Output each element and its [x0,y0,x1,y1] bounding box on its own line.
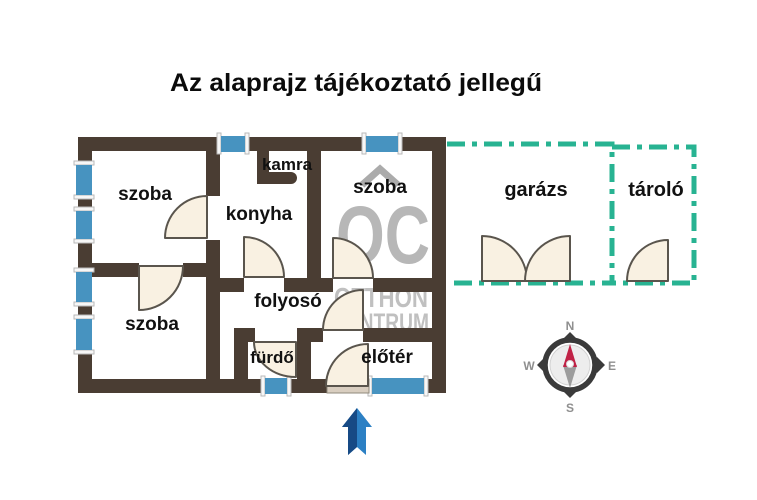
room-label-eloter: előtér [361,347,413,368]
room-label-kamra: kamra [262,155,313,174]
window-frame [287,376,291,396]
window-room-right-top [366,136,398,152]
wall-corridor-top-a [206,278,244,292]
window-frame [74,239,94,243]
room-label-szoba-3: szoba [353,177,407,198]
compass-west-label: W [523,359,535,373]
window-frame [245,133,249,154]
room-label-konyha: konyha [226,204,293,225]
window-frame [217,133,221,154]
wall-left-rooms-a [92,263,139,277]
window-frame [74,315,94,319]
wall-corridor-top-b [284,278,333,292]
page-title: Az alaprajz tájékoztató jellegű [170,69,542,97]
wall-bathroom-right [297,328,311,379]
window-frame [74,350,94,354]
window-frame [74,302,94,306]
window-hall [372,378,424,394]
room-label-szoba-2: szoba [125,314,179,335]
room-label-furdo: fürdő [250,348,293,367]
window-frame [74,161,94,165]
compass-south-label: S [566,401,574,415]
floorplan-page: Az alaprajz tájékoztató jellegű OC OTTHO… [0,0,757,500]
window-frame [74,207,94,211]
room-label-garazs: garázs [504,179,567,201]
window-frame [398,133,402,154]
floorplan-canvas: Az alaprajz tájékoztató jellegű OC OTTHO… [0,0,757,500]
window-frame [261,376,265,396]
wall-corridor-top-c [373,278,446,292]
wall-left-rooms-b [183,263,220,277]
compass-east-label: E [608,359,616,373]
room-label-folyoso: folyosó [254,291,322,312]
compass-north-label: N [566,319,575,333]
compass-hub [567,361,574,368]
wall-kitchen-left-lower [206,240,220,379]
window-frame [424,376,428,396]
window-room2-b [76,319,92,350]
window-kitchen-top [221,136,245,152]
wall-corridor-bottom-c [363,328,446,342]
window-room1-b [76,211,92,239]
room-label-szoba-1: szoba [118,184,172,205]
window-bathroom [265,378,287,394]
wall-bathroom-left [234,328,248,379]
room-label-tarolo: tároló [628,179,684,201]
window-frame [74,195,94,199]
wall-right [432,137,446,393]
window-frame [362,133,366,154]
wall-kitchen-left-upper [206,151,220,196]
window-frame [74,268,94,272]
window-room2-a [76,272,92,302]
window-room1-a [76,165,92,195]
